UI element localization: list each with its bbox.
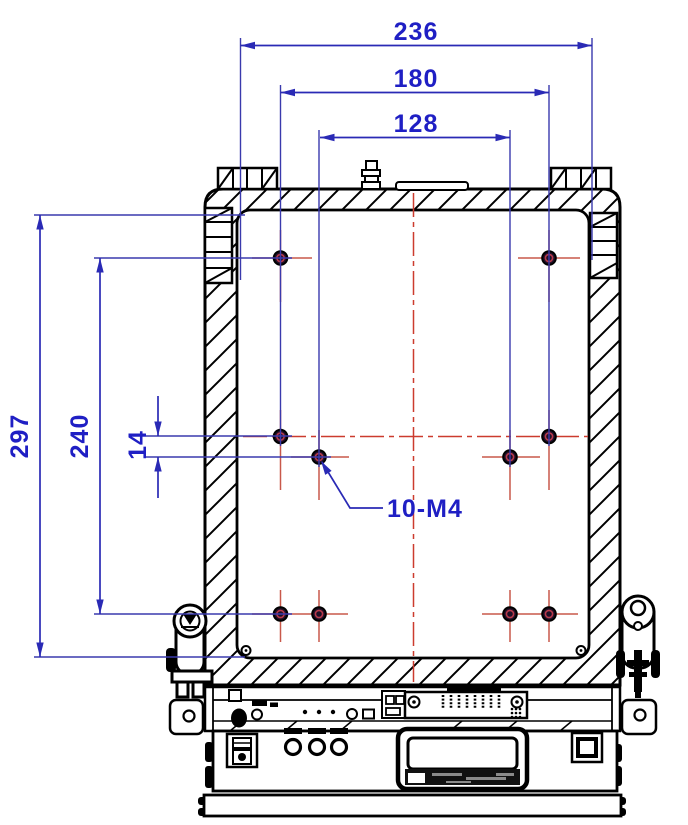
top-clamp-left bbox=[218, 168, 277, 189]
grease-nipple bbox=[362, 161, 380, 189]
round-jacks bbox=[284, 728, 348, 755]
side-clamp-left bbox=[205, 208, 232, 283]
thread-callout-label: 10-M4 bbox=[387, 495, 463, 523]
square-connector bbox=[572, 733, 602, 762]
mount-ear-left bbox=[170, 700, 203, 734]
drawing-page: 236 180 128 297 240 14 10-M4 bbox=[0, 0, 688, 825]
dim-label-240: 240 bbox=[66, 414, 94, 459]
connector-dots bbox=[511, 708, 522, 719]
jack-3 bbox=[332, 740, 347, 755]
dim-label-180: 180 bbox=[394, 65, 439, 93]
rail-roller-2 bbox=[347, 709, 357, 719]
m4-hole bbox=[542, 607, 556, 621]
jack-2 bbox=[310, 740, 325, 755]
rail-dot-2 bbox=[317, 710, 321, 714]
m4-hole bbox=[312, 607, 326, 621]
pin-connector bbox=[405, 688, 527, 719]
rail-tab bbox=[229, 690, 241, 701]
rail-cam bbox=[231, 709, 247, 728]
knob-right bbox=[616, 596, 660, 698]
top-clamp-right bbox=[551, 168, 611, 189]
top-edge-boss bbox=[396, 182, 468, 190]
bottom-assembly bbox=[170, 687, 656, 816]
rail-block-2 bbox=[270, 703, 278, 708]
center-bracket bbox=[398, 729, 527, 789]
rail-box bbox=[363, 710, 374, 719]
rail-dot-3 bbox=[331, 710, 335, 714]
jack-1 bbox=[286, 740, 301, 755]
rail-block-1 bbox=[252, 700, 267, 706]
limit-module bbox=[382, 691, 405, 718]
dim-label-14: 14 bbox=[124, 430, 152, 460]
knob-left bbox=[166, 605, 212, 697]
power-switch bbox=[227, 734, 257, 767]
dim-label-128: 128 bbox=[394, 110, 439, 138]
top-fittings bbox=[218, 161, 611, 190]
side-clamp-right bbox=[590, 213, 617, 278]
rail-dot-1 bbox=[303, 710, 307, 714]
base-rail bbox=[205, 687, 620, 731]
m4-hole bbox=[503, 607, 517, 621]
dim-label-236: 236 bbox=[394, 18, 439, 46]
technical-drawing-canvas: 236 180 128 297 240 14 10-M4 bbox=[0, 0, 688, 825]
dim-label-297: 297 bbox=[6, 414, 34, 459]
base-bar bbox=[198, 795, 626, 816]
front-panel bbox=[205, 728, 622, 791]
rail-roller-1 bbox=[252, 710, 262, 720]
mount-ear-right bbox=[622, 700, 656, 734]
